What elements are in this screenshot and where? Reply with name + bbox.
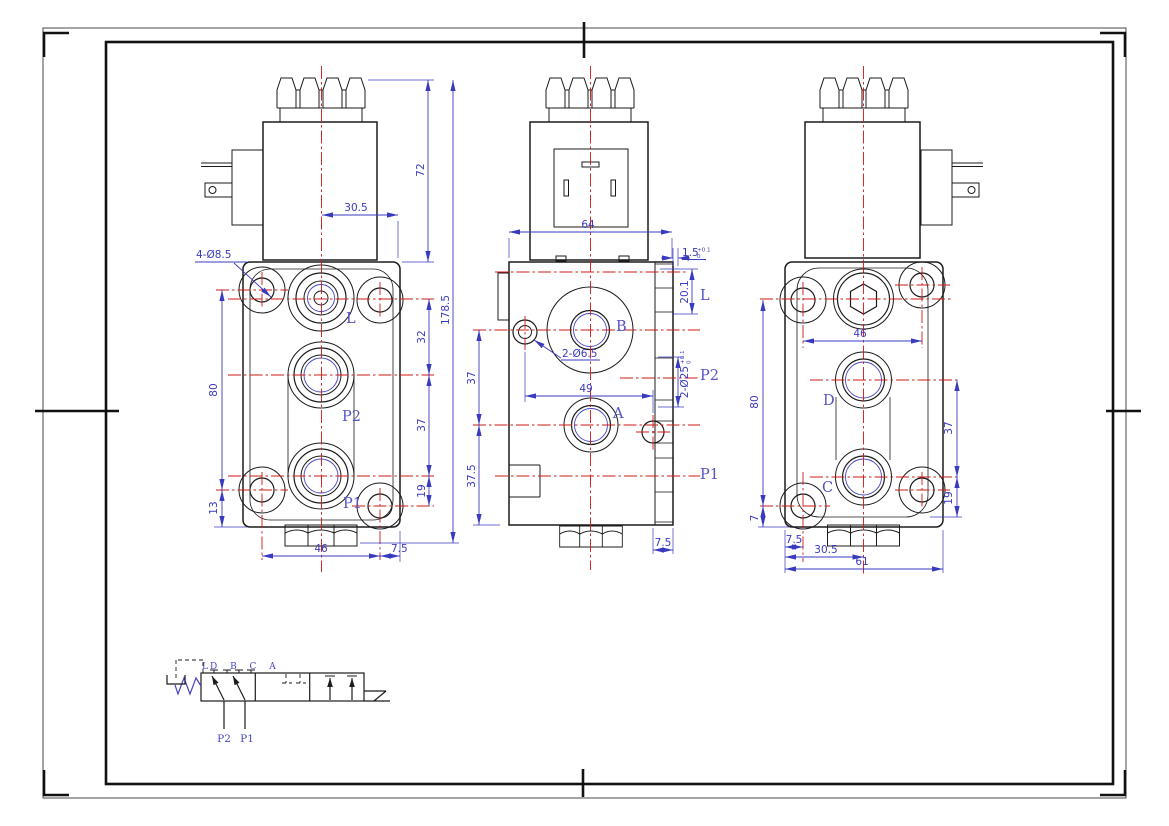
dim-13: 13	[208, 501, 220, 514]
port-label-p2-side: P2	[700, 368, 719, 384]
section-hatch	[655, 264, 673, 522]
solenoid-coil-rear	[805, 122, 920, 258]
din-plug-face	[554, 149, 628, 227]
dim-7-5-rear: 7.5	[786, 534, 803, 546]
dim-20-1: 20.1	[679, 280, 691, 303]
symbol-label-p2: P2	[217, 733, 231, 745]
dimensions-rear: 46 37 19 80 7 7.5 30.5 61	[749, 300, 962, 573]
dim-1-5-tol-up: +0.1	[697, 248, 711, 254]
dim-80-rear: 80	[749, 395, 761, 408]
dim-7: 7	[749, 515, 761, 522]
dim-30-5-rear: 30.5	[814, 544, 837, 556]
dim-19-front: 19	[416, 484, 428, 497]
symbol-port-letters: D B C A	[210, 662, 281, 672]
note-2-ports: 2-Ø25	[679, 366, 691, 398]
dim-49: 49	[579, 383, 592, 395]
dim-7-5-front: 7.5	[391, 543, 408, 555]
note-4-holes: 4-Ø8.5	[196, 249, 231, 261]
note-2-ports-tol-dn: 0	[687, 360, 693, 364]
solenoid-coil-front	[263, 122, 377, 260]
port-label-p1-front: P1	[343, 496, 362, 512]
dimensions-front: 30.5 72 178.5 32 37 19 80 13 46 7.5 4-Ø8…	[195, 80, 459, 562]
front-view: 30.5 72 178.5 32 37 19 80 13 46 7.5 4-Ø8…	[195, 66, 459, 572]
dim-64: 64	[581, 219, 595, 231]
symbol-label-p1: P1	[240, 733, 254, 745]
valve-body-rear	[785, 262, 943, 527]
center-position-symbol	[282, 674, 306, 683]
solenoid-cap-front	[277, 78, 365, 122]
port-label-p1-side: P1	[700, 467, 719, 483]
dim-37-side: 37	[466, 371, 478, 384]
port-label-a: A	[612, 406, 624, 422]
din-plug-housing	[530, 122, 648, 260]
drawing-sheet: 30.5 72 178.5 32 37 19 80 13 46 7.5 4-Ø8…	[0, 0, 1169, 826]
solenoid-symbol	[364, 691, 390, 701]
valve-drawing: 30.5 72 178.5 32 37 19 80 13 46 7.5 4-Ø8…	[0, 0, 1169, 826]
section-view: 64 1.5 +0.1 0 20.1 2-Ø6.5 49 2-Ø25 +0.1 …	[466, 66, 719, 570]
note-2-ports-tol-up: +0.1	[680, 350, 686, 364]
dim-37-5: 37.5	[466, 464, 478, 487]
valve-symbol-body	[201, 673, 364, 701]
dim-30-5: 30.5	[344, 202, 367, 214]
dim-61: 61	[855, 556, 868, 568]
dim-46-rear: 46	[853, 328, 867, 340]
symbol-label-l: L	[202, 662, 208, 672]
p-port-stems	[224, 701, 245, 729]
dim-37-rear: 37	[943, 421, 955, 434]
rear-view: 46 37 19 80 7 7.5 30.5 61 D C	[749, 66, 983, 576]
din-pin-right	[611, 180, 616, 196]
port-l-boss	[288, 265, 354, 331]
bottom-nut-side	[560, 526, 623, 547]
dim-7-5-side: 7.5	[655, 537, 672, 549]
din-connector-rear	[921, 150, 983, 225]
solenoid-cap-side	[546, 78, 634, 122]
note-2-holes: 2-Ø6.5	[562, 348, 597, 360]
drain-pilot-line	[176, 660, 203, 681]
dim-32: 32	[416, 330, 428, 343]
centerlines-side	[473, 66, 700, 570]
body-face-contour-rear	[797, 268, 928, 517]
dim-80-front: 80	[208, 383, 220, 396]
port-label-p2-front: P2	[342, 409, 361, 425]
dim-178-5: 178.5	[440, 295, 452, 325]
dim-19-rear: 19	[943, 491, 955, 504]
port-label-c: C	[822, 480, 833, 496]
port-label-l-front: L	[346, 311, 356, 327]
din-connector-front	[201, 150, 263, 225]
hydraulic-symbol: L D B C A P2 P1	[167, 660, 390, 745]
port-label-l-side: L	[700, 288, 710, 304]
port-label-b: B	[616, 319, 627, 335]
solenoid-cap-rear	[820, 78, 908, 122]
spring-symbol	[175, 678, 201, 694]
dim-1-5-tol-dn: 0	[697, 254, 701, 260]
dim-37-front: 37	[416, 418, 428, 431]
din-pin-left	[564, 180, 569, 196]
port-label-d: D	[823, 393, 835, 409]
dim-46-front: 46	[314, 543, 328, 555]
dim-72: 72	[415, 163, 427, 176]
dimensions-side: 64 1.5 +0.1 0 20.1 2-Ø6.5 49 2-Ø25 +0.1 …	[466, 219, 711, 554]
